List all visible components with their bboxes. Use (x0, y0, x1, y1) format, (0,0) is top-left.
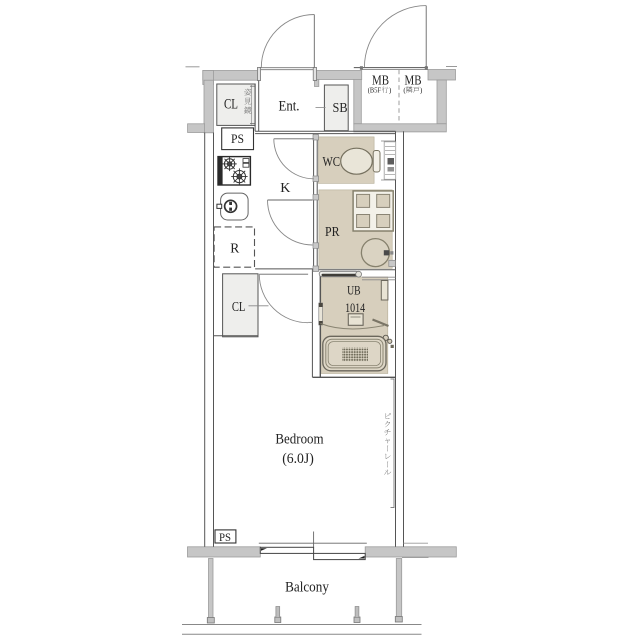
svg-text:MB: MB (405, 73, 422, 88)
svg-text:R: R (230, 241, 239, 256)
svg-text:(B5F: (B5F (368, 86, 381, 94)
svg-text:MB: MB (372, 73, 389, 88)
svg-text:CL: CL (224, 97, 238, 113)
svg-text:PS: PS (219, 532, 231, 544)
svg-text:(6.0J): (6.0J) (282, 451, 314, 467)
svg-text:CL: CL (232, 299, 246, 314)
svg-text:WC: WC (323, 155, 341, 170)
svg-text:1014: 1014 (345, 300, 365, 315)
svg-text:PR: PR (325, 224, 340, 239)
svg-text:K: K (280, 181, 290, 196)
svg-text:UB: UB (347, 283, 361, 298)
svg-text:Balcony: Balcony (285, 580, 329, 596)
svg-text:Ent.: Ent. (279, 99, 300, 115)
svg-text:SB: SB (333, 101, 348, 116)
svg-text:Bedroom: Bedroom (275, 432, 323, 448)
svg-text:PS: PS (231, 132, 244, 146)
